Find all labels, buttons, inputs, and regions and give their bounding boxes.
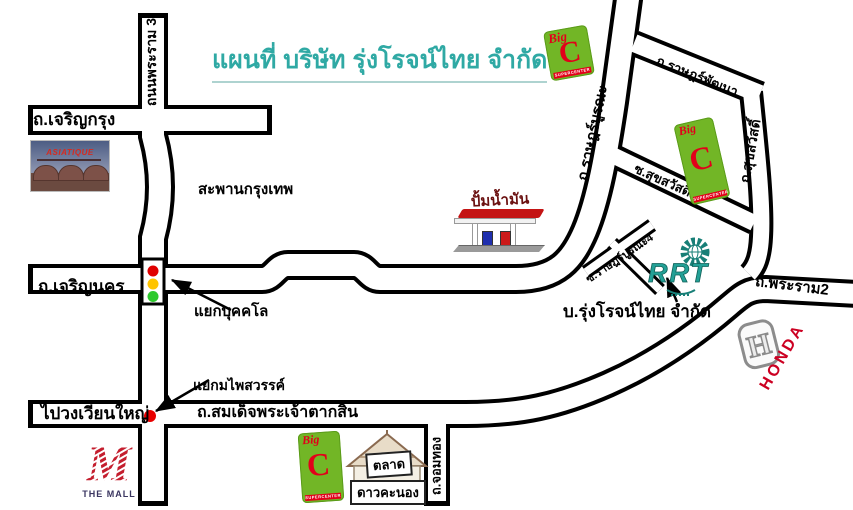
svg-text:RRT: RRT bbox=[648, 258, 710, 288]
rrt-gear-globe-icon: RRT bbox=[645, 236, 717, 300]
place-label-yaek-phaisawan: แยกมไพสวรรค์ bbox=[193, 377, 285, 393]
place-label-yaek-bukkhalo: แยกบุคคโล bbox=[194, 303, 268, 320]
market-label-line1: ตลาด bbox=[365, 450, 413, 478]
company-location-map: แผนที่ บริษัท รุ่งโรจน์ไทย จำกัด ถนนพระร… bbox=[0, 0, 853, 510]
dao-khanong-market: ตลาด ดาวคะนอง bbox=[340, 430, 434, 508]
market-label-line2: ดาวคะนอง bbox=[350, 480, 426, 505]
gas-station: ปั้มน้ำมัน bbox=[450, 188, 550, 252]
asiatique-logo: ASIATIQUE bbox=[30, 140, 110, 192]
gas-canopy bbox=[457, 209, 544, 218]
svg-text:M: M bbox=[86, 438, 133, 488]
the-mall-m-icon: M bbox=[78, 438, 140, 488]
the-mall-caption: THE MALL bbox=[78, 489, 140, 499]
map-title: แผนที่ บริษัท รุ่งโรจน์ไทย จำกัด bbox=[212, 40, 547, 83]
road-label-rama3: ถนนพระราม 3 bbox=[143, 18, 159, 106]
road-label-charoen-nakhon: ถ.เจริญนคร bbox=[38, 277, 125, 297]
place-label-company: บ.รุ่งโรจน์ไทย จำกัด bbox=[563, 302, 711, 322]
bigc-logo-bottom: Big C SUPERCENTER bbox=[298, 431, 345, 504]
traffic-light-icon bbox=[142, 259, 164, 304]
bigc-logo-top: Big C SUPERCENTER bbox=[543, 25, 595, 82]
place-label-wongwian-yai: ไปวงเวียนใหญ่ bbox=[41, 404, 149, 424]
road-label-taksin: ถ.สมเด็จพระเจ้าตากสิน bbox=[197, 404, 358, 422]
asiatique-sign-text: ASIATIQUE bbox=[31, 148, 109, 157]
the-mall-logo: M THE MALL bbox=[78, 438, 140, 504]
place-label-saphan-krungthep: สะพานกรุงเทพ bbox=[198, 181, 293, 198]
road-label-charoen-krung: ถ.เจริญกรุง bbox=[33, 110, 115, 130]
rrt-company-logo: RRT bbox=[645, 236, 717, 300]
